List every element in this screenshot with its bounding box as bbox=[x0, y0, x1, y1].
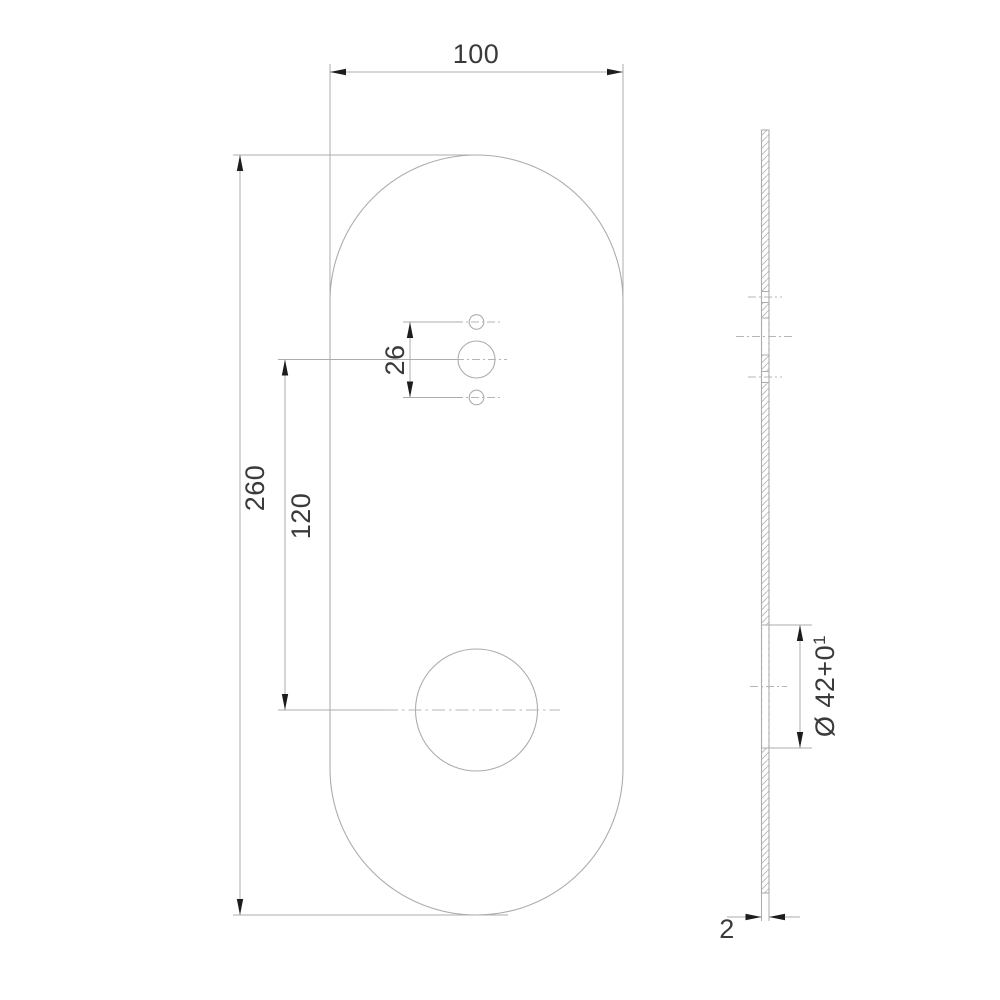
arrowhead-left bbox=[769, 914, 785, 920]
plate-section-strip bbox=[762, 130, 770, 893]
diameter-tolerance-superscript: 1 bbox=[810, 635, 829, 645]
dimension-height: 260 bbox=[233, 155, 508, 915]
arrowhead-down bbox=[237, 899, 243, 915]
technical-drawing: 100 260 120 26 bbox=[0, 0, 1000, 1000]
dimension-width: 100 bbox=[330, 39, 623, 300]
drawing-canvas: 100 260 120 26 bbox=[0, 0, 1000, 1000]
side-view bbox=[736, 130, 795, 893]
dimension-label-hole-diameter: Ø 42+01 bbox=[810, 635, 840, 737]
arrowhead-up bbox=[237, 155, 243, 171]
front-view bbox=[330, 155, 623, 915]
dimension-label-hole-offset: 120 bbox=[286, 493, 316, 540]
arrowhead-down bbox=[407, 382, 413, 398]
arrowhead-right bbox=[746, 914, 762, 920]
front-holes bbox=[416, 315, 538, 771]
dimension-label-thickness: 2 bbox=[719, 914, 735, 944]
arrowhead-left bbox=[330, 69, 346, 75]
dimension-hole-offset: 120 bbox=[278, 360, 457, 711]
arrowhead-down bbox=[282, 694, 288, 710]
plate-outline bbox=[330, 155, 623, 915]
arrowhead-down bbox=[797, 732, 803, 748]
arrowhead-up bbox=[282, 360, 288, 376]
dimension-thickness: 2 bbox=[719, 893, 800, 944]
arrowhead-up bbox=[797, 625, 803, 641]
dimension-label-hole-spacing: 26 bbox=[380, 344, 410, 375]
arrowhead-up bbox=[407, 322, 413, 338]
dimension-label-height: 260 bbox=[240, 465, 270, 512]
arrowhead-right bbox=[607, 69, 623, 75]
diameter-value: Ø 42+0 bbox=[810, 645, 840, 737]
dimension-label-width: 100 bbox=[453, 39, 500, 69]
front-centerlines bbox=[385, 322, 560, 710]
